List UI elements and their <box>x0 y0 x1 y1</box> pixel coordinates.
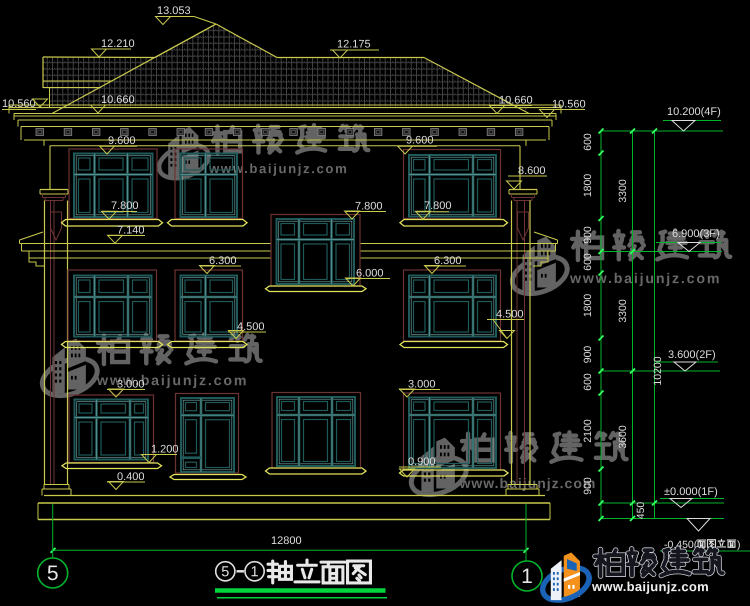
svg-text:10.660: 10.660 <box>499 95 533 107</box>
svg-text:5: 5 <box>221 564 229 580</box>
svg-text:±0.000(1F): ±0.000(1F) <box>664 486 718 498</box>
svg-text:www.baijunjz.com: www.baijunjz.com <box>569 271 721 287</box>
svg-text:3300: 3300 <box>617 179 629 203</box>
svg-text:10.560: 10.560 <box>2 98 36 110</box>
svg-text:4.500: 4.500 <box>496 309 524 321</box>
svg-text:0.900: 0.900 <box>408 456 436 468</box>
svg-text:10.660: 10.660 <box>101 94 135 106</box>
svg-text:12.210: 12.210 <box>101 38 135 50</box>
svg-text:12800: 12800 <box>271 535 302 547</box>
svg-text:600: 600 <box>582 133 594 151</box>
svg-text:10200: 10200 <box>652 356 664 385</box>
svg-text:7.800: 7.800 <box>111 200 139 212</box>
svg-text:900: 900 <box>582 477 594 495</box>
svg-text:1800: 1800 <box>582 294 594 318</box>
svg-text:1: 1 <box>521 565 533 588</box>
svg-text:5: 5 <box>47 562 59 585</box>
svg-text:1.200: 1.200 <box>151 444 179 456</box>
svg-text:3600: 3600 <box>617 425 629 449</box>
svg-text:1800: 1800 <box>582 174 594 198</box>
svg-text:www.baijunjz.com: www.baijunjz.com <box>591 579 709 594</box>
svg-text:6.900(3F): 6.900(3F) <box>672 228 720 240</box>
svg-text:3300: 3300 <box>617 299 629 323</box>
svg-text:600: 600 <box>582 373 594 391</box>
svg-text:10.200(4F): 10.200(4F) <box>667 106 721 118</box>
svg-text:9.600: 9.600 <box>406 135 434 147</box>
svg-text:900: 900 <box>582 226 594 244</box>
svg-text:1: 1 <box>251 564 259 580</box>
svg-text:3.600(2F): 3.600(2F) <box>668 349 716 361</box>
svg-text:8.600: 8.600 <box>518 165 546 177</box>
svg-text:10.560: 10.560 <box>552 99 586 111</box>
svg-text:9.600: 9.600 <box>108 135 136 147</box>
svg-text:600: 600 <box>582 253 594 271</box>
svg-text:13.053: 13.053 <box>157 5 191 17</box>
svg-text:4.500: 4.500 <box>237 321 265 333</box>
svg-text:): ) <box>737 539 741 551</box>
svg-text:900: 900 <box>582 346 594 364</box>
svg-text:450: 450 <box>635 502 647 520</box>
svg-text:12.175: 12.175 <box>337 39 371 51</box>
svg-text:2100: 2100 <box>582 419 594 443</box>
svg-text:7.800: 7.800 <box>424 200 452 212</box>
